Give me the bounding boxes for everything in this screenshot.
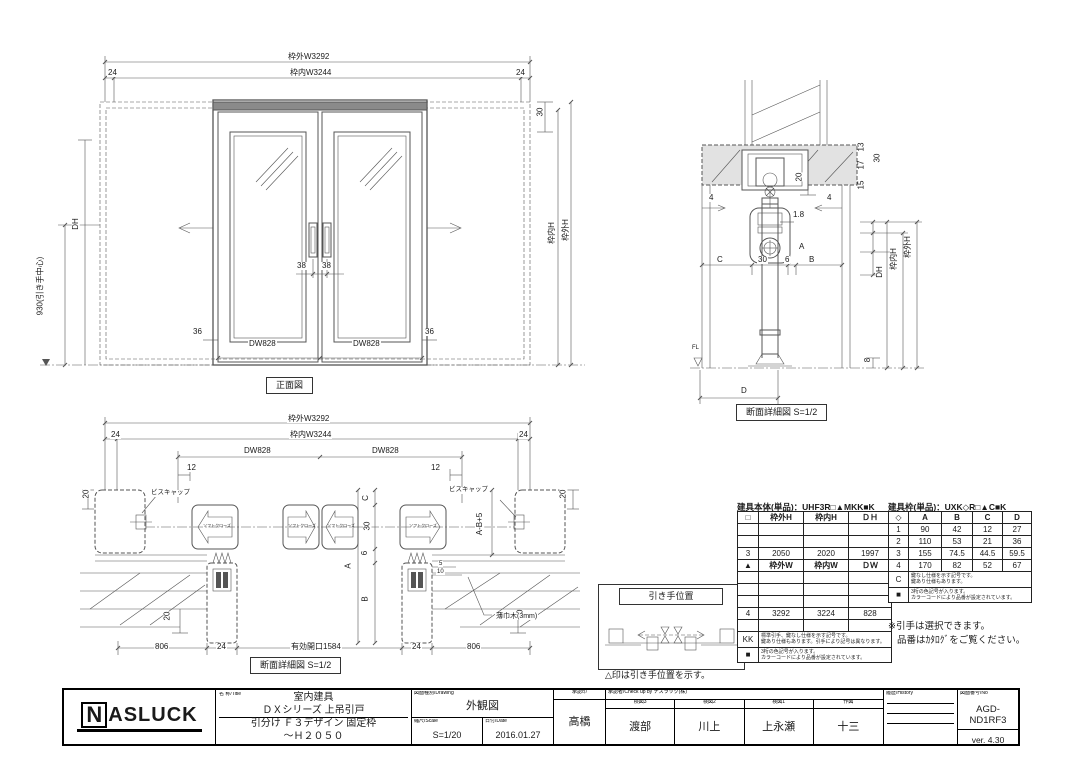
approval-cell: 承認印 高橋	[554, 690, 606, 744]
dim-front-38-left: 38	[296, 262, 307, 270]
door-code-left: DW828	[248, 340, 277, 348]
dim-front-36-right: 36	[424, 328, 435, 336]
dim-plan-24b-left: 24	[216, 643, 227, 651]
soft-close-label: ソフトクローズ	[323, 524, 359, 528]
dim-plan-20-topright: 20	[559, 490, 567, 499]
drawing-number-cell: 図面番号/No AGD-ND1RF3 ver. 4.30	[958, 690, 1018, 744]
drawing-number-label: 図面番号/No	[960, 691, 988, 697]
table-row	[738, 596, 892, 608]
dim-plan-b: B	[362, 596, 370, 601]
table-row: 432923224828	[738, 608, 892, 620]
history-label: 履歴/History	[886, 691, 913, 697]
baseboard-label: 薄巾木(3mm)	[495, 613, 538, 620]
dim-sec-13: 13	[857, 143, 865, 152]
dim-sec-inner-h: 枠内H	[890, 248, 898, 270]
selection-note: ※引手は選択できます。 品番はｶﾀﾛｸﾞをご覧ください。	[888, 620, 1025, 649]
dim-sec-c: C	[716, 256, 724, 264]
dim-plan-24-left: 24	[110, 431, 121, 439]
table-row	[738, 584, 892, 596]
table-row	[738, 620, 892, 632]
checker-col: 作図 十三	[814, 700, 883, 745]
dim-front-inner-width: 枠内W3244	[289, 69, 332, 77]
dim-plan-806-left: 806	[154, 643, 169, 651]
table-row: 4170825267	[889, 560, 1032, 572]
name-label: 名 称/Title	[219, 692, 241, 698]
dim-front-outer-h: 枠外H	[562, 219, 570, 241]
product-name-line2: ＤＸシリーズ 上吊引戸	[219, 705, 408, 718]
dim-plan-806-right: 806	[466, 643, 481, 651]
checkers-header: 承認者/Check up by ナスラック(株)	[606, 690, 883, 700]
dim-sec-6: 6	[784, 256, 790, 264]
dim-plan-12-right: 12	[430, 464, 441, 472]
drawing-version: ver. 4.30	[958, 735, 1018, 745]
dim-sec-30: 30	[757, 256, 768, 264]
handle-mark-up-icon	[674, 636, 682, 643]
handle-mark-up-icon	[661, 636, 669, 643]
dim-front-30: 30	[536, 108, 544, 117]
dim-plan-6: 6	[361, 551, 369, 555]
dim-front-24-left: 24	[107, 69, 118, 77]
body-parts-table: □ 枠外H 枠内H ＤＨ 3205020201997 ▲枠外W枠内WＤＷ 432…	[737, 511, 892, 663]
screw-cap-label-right: ビスキャップ	[448, 487, 489, 494]
title-name-cell: 名 称/Title 室内建具 ＤＸシリーズ 上吊引戸 引分け Ｆ３デザイン 固定…	[216, 690, 412, 744]
dim-plan-outer-width: 枠外W3292	[287, 415, 330, 423]
checker-name: 川上	[675, 718, 743, 734]
date-label: 日付/Date	[485, 719, 507, 725]
table-row	[738, 572, 892, 584]
front-view-linework	[40, 40, 585, 405]
table-row	[738, 524, 892, 536]
table-row	[738, 536, 892, 548]
checker-role: 検図2	[675, 700, 743, 709]
dim-sec-b: B	[808, 256, 815, 264]
dim-plan-door-left: DW828	[243, 447, 272, 455]
plan-view-caption: 断面詳細図 S=1/2	[250, 657, 341, 674]
dim-sec-d: D	[740, 387, 748, 395]
drawing-type-cell: 図面種別/Drawing 外観図 縮尺/Scale S=1/20 日付/Date…	[412, 690, 554, 744]
note-line: カラーコードにより品番が設定されています。	[911, 595, 1029, 601]
checker-col: 検図3 渡部	[606, 700, 675, 745]
dim-sec-17: 17	[857, 161, 865, 170]
dim-plan-30: 30	[363, 522, 371, 531]
note-line: 鍵あり仕様もあります。	[911, 579, 1029, 585]
drawing-type-value: 外観図	[412, 697, 553, 713]
dim-plan-24b-right: 24	[411, 643, 422, 651]
dim-sec-20: 20	[795, 173, 803, 182]
section-view-caption: 断面詳細図 S=1/2	[736, 404, 827, 421]
screw-cap-label-left: ビスキャップ	[150, 490, 191, 497]
scale-label: 縮尺/Scale	[414, 719, 438, 725]
handle-position-diagram	[601, 609, 741, 665]
floor-level-label: FL	[691, 345, 700, 351]
dim-plan-20-bottomleft: 20	[163, 612, 171, 621]
product-name-line1: 室内建具	[219, 692, 408, 705]
title-block: N ASLUCK 名 称/Title 室内建具 ＤＸシリーズ 上吊引戸 引分け …	[62, 688, 1020, 746]
dim-front-24-right: 24	[515, 69, 526, 77]
soft-close-label: ソフトクローズ	[198, 524, 236, 528]
dim-plan-10: 10	[436, 569, 445, 575]
checker-role: 検図3	[606, 700, 674, 709]
approval-label: 承認印	[554, 690, 605, 700]
table-row: ▲枠外W枠内WＤＷ	[738, 560, 892, 572]
dim-front-inner-h: 枠内H	[548, 222, 556, 244]
dim-front-38-right: 38	[321, 262, 332, 270]
table-note-row: ■ 3桁の色記号が入ります。 カラーコードにより品番が設定されています。	[738, 647, 892, 663]
dim-plan-door-right: DW828	[371, 447, 400, 455]
handle-position-note: △印は引き手位置を示す。	[604, 671, 711, 680]
drawing-number-value: AGD-ND1RF3	[958, 704, 1018, 730]
scale-value: S=1/20	[412, 730, 482, 740]
handle-position-box: 引き手位置	[598, 584, 745, 670]
checker-col: 検図2 川上	[675, 700, 744, 745]
dim-sec-clearance: 1.8	[792, 211, 805, 219]
table-row: □ 枠外H 枠内H ＤＨ	[738, 512, 892, 524]
selection-note-line1: ※引手は選択できます。	[888, 620, 1025, 634]
dim-front-handle-center: 930(引き手中心)	[36, 257, 44, 316]
logo-initial: N	[81, 702, 107, 728]
dim-plan-20-topleft: 20	[82, 490, 90, 499]
nasluck-logo: N ASLUCK	[77, 702, 201, 732]
handle-mark-down-icon	[661, 627, 669, 634]
table-row: 2110532136	[889, 536, 1032, 548]
table-row: 190421227	[889, 524, 1032, 536]
note-line: カラーコードにより品番が設定されています。	[761, 655, 889, 661]
logo-cell: N ASLUCK	[64, 690, 216, 744]
dim-front-outer-width: 枠外W3292	[287, 53, 330, 61]
dim-sec-4-right: 4	[826, 194, 832, 202]
dim-plan-inner-width: 枠内W3244	[289, 431, 332, 439]
frame-parts-table: ◇ A B C D 190421227 2110532136 315574.54…	[888, 511, 1032, 603]
dim-plan-12-left: 12	[186, 464, 197, 472]
dim-plan-a-b5: A-B+5	[476, 513, 484, 535]
approval-name: 高橋	[554, 713, 605, 729]
note-line: 鍵あり仕様もあります。引手により記号は異なります。	[761, 639, 889, 645]
front-view-caption: 正面図	[266, 377, 313, 394]
dim-front-36-left: 36	[192, 328, 203, 336]
dim-sec-outer-h: 枠外H	[904, 236, 912, 258]
table-note-row: KK 標準引手、鍵なし仕様を示す記号です。 鍵あり仕様もあります。引手により記号…	[738, 632, 892, 648]
table-note-row: ■ 3桁の色記号が入ります。 カラーコードにより品番が設定されています。	[889, 587, 1032, 603]
soft-close-label: ソフトクローズ	[284, 524, 320, 528]
dim-sec-4-left: 4	[708, 194, 714, 202]
table-note-row: C 鍵なし仕様を示す記号です。 鍵あり仕様もあります。	[889, 572, 1032, 588]
selection-note-line2: 品番はｶﾀﾛｸﾞをご覧ください。	[897, 634, 1025, 648]
drawing-type-label: 図面種別/Drawing	[414, 691, 454, 697]
checker-role: 作図	[814, 700, 883, 709]
checkers-cell: 承認者/Check up by ナスラック(株) 検図3 渡部 検図2 川上 検…	[606, 690, 884, 744]
dim-plan-a: A	[345, 563, 353, 568]
checker-name: 渡部	[606, 718, 674, 734]
dim-front-dh: DH	[72, 218, 80, 230]
checker-name: 上永瀬	[745, 718, 813, 734]
table-row: ◇ A B C D	[889, 512, 1032, 524]
checker-name: 十三	[814, 718, 883, 734]
date-value: 2016.01.27	[483, 730, 553, 740]
dim-sec-dh: DH	[876, 266, 884, 278]
soft-close-label: ソフトクローズ	[404, 524, 442, 528]
dim-plan-opening: 有効開口1584	[290, 643, 342, 651]
table-row: 3205020201997	[738, 548, 892, 560]
logo-text: ASLUCK	[108, 704, 197, 727]
checker-col: 検図1 上永瀬	[745, 700, 814, 745]
drawing-sheet: 枠外W3292 枠内W3244 24 24 30 DH 930(引き手中心) 3…	[0, 0, 1080, 763]
dim-plan-5: 5	[438, 561, 443, 567]
dim-sec-15: 15	[857, 181, 865, 190]
history-cell: 履歴/History	[884, 690, 958, 744]
dim-sec-30r: 30	[873, 154, 881, 163]
dim-sec-a: A	[798, 243, 805, 251]
door-code-right: DW828	[352, 340, 381, 348]
product-name-line3: 引分け Ｆ３デザイン 固定枠	[219, 718, 408, 731]
dim-plan-c: C	[362, 495, 370, 501]
checker-role: 検図1	[745, 700, 813, 709]
dim-sec-8: 8	[864, 358, 872, 362]
handle-position-title: 引き手位置	[619, 588, 723, 605]
table-row: 315574.544.559.5	[889, 548, 1032, 560]
handle-mark-down-icon	[674, 627, 682, 634]
product-name-line4: ～Ｈ２０５０	[219, 731, 408, 744]
dim-plan-24-right: 24	[518, 431, 529, 439]
